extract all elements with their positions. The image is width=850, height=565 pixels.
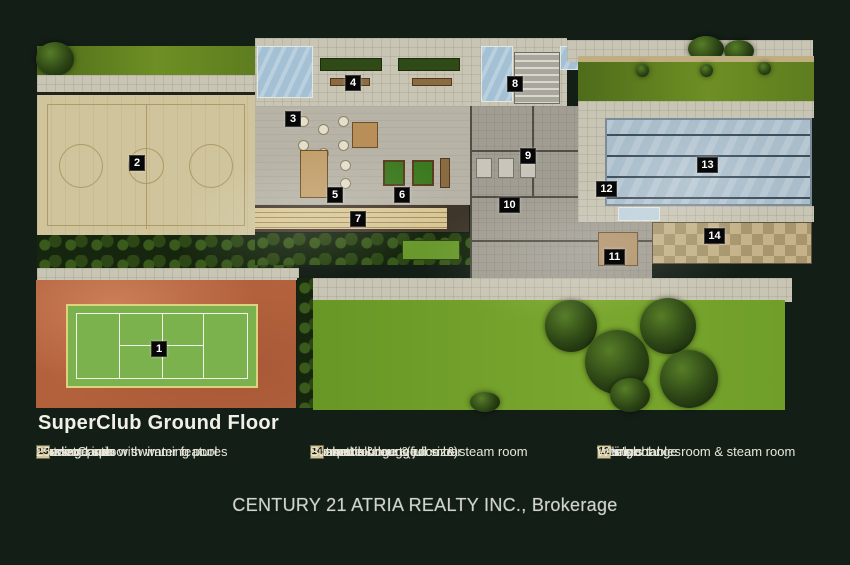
- plan-marker-11: 11: [604, 249, 625, 265]
- plan-marker-10: 10: [499, 197, 520, 213]
- planter-box: [398, 58, 460, 71]
- walkway-northwest: [37, 75, 255, 92]
- water-feature: [481, 46, 513, 102]
- legend-label: Whirlpool: [597, 444, 651, 459]
- bowling-pin-deck: [447, 205, 469, 232]
- walkway-south: [300, 278, 792, 302]
- plan-marker-1: 1: [151, 341, 167, 357]
- plan-marker-4: 4: [345, 75, 361, 91]
- bush: [610, 378, 650, 412]
- lounge-table: [338, 140, 349, 151]
- tennis-service-line-left: [119, 313, 120, 379]
- tree: [700, 64, 713, 77]
- sun-patio-region: [652, 222, 812, 264]
- hedge-column: [297, 278, 313, 408]
- floorplan-image: 1 2 3 4 5 6 7 8 9 10 11 12 13 14 SuperCl…: [0, 0, 850, 565]
- pool-deck-north: [578, 101, 814, 118]
- plan-marker-2: 2: [129, 155, 145, 171]
- court-key-circle-left: [59, 144, 103, 188]
- tree: [660, 350, 718, 408]
- walkway-sliver: [37, 268, 299, 280]
- pool-deck-south: [578, 206, 814, 222]
- tree: [36, 42, 74, 76]
- lounge-table: [318, 124, 329, 135]
- juice-bar-counter: [440, 158, 450, 188]
- wall: [470, 196, 580, 198]
- lounge-table: [340, 160, 351, 171]
- tree: [758, 62, 771, 75]
- water-feature: [257, 46, 313, 98]
- spa-stall: [476, 158, 492, 178]
- plan-marker-3: 3: [285, 111, 301, 127]
- spa-stall: [498, 158, 514, 178]
- tennis-service-line-right: [203, 313, 204, 379]
- plan-marker-8: 8: [507, 76, 523, 92]
- plan-marker-7: 7: [350, 211, 366, 227]
- plan-marker-9: 9: [520, 148, 536, 164]
- plan-marker-13: 13: [697, 157, 718, 173]
- lounge-rug: [352, 122, 378, 148]
- court-key-circle-right: [189, 144, 233, 188]
- grass-band-northeast: [578, 62, 814, 101]
- wall: [470, 106, 472, 278]
- billiards-table: [412, 160, 434, 186]
- plan-marker-6: 6: [394, 187, 410, 203]
- plan-marker-12: 12: [596, 181, 617, 197]
- bush: [470, 392, 500, 412]
- patio-bench: [412, 78, 452, 86]
- billiards-table: [383, 160, 405, 186]
- lounge-table: [338, 116, 349, 127]
- tree: [636, 64, 649, 77]
- legend-label: 25-metre indoor swimming pool: [36, 444, 217, 459]
- planter-box: [320, 58, 382, 71]
- plan-marker-5: 5: [327, 187, 343, 203]
- whirlpool-region: [618, 207, 660, 221]
- planter-lawn: [402, 240, 460, 260]
- internet-lounge-table: [300, 150, 328, 198]
- tree: [640, 298, 696, 354]
- legend-label: Sun patio: [310, 444, 365, 459]
- page-title: SuperClub Ground Floor: [38, 412, 279, 435]
- brokerage-watermark: CENTURY 21 ATRIA REALTY INC., Brokerage: [0, 495, 850, 516]
- basketball-court-region: [37, 92, 255, 235]
- plan-marker-14: 14: [704, 228, 725, 244]
